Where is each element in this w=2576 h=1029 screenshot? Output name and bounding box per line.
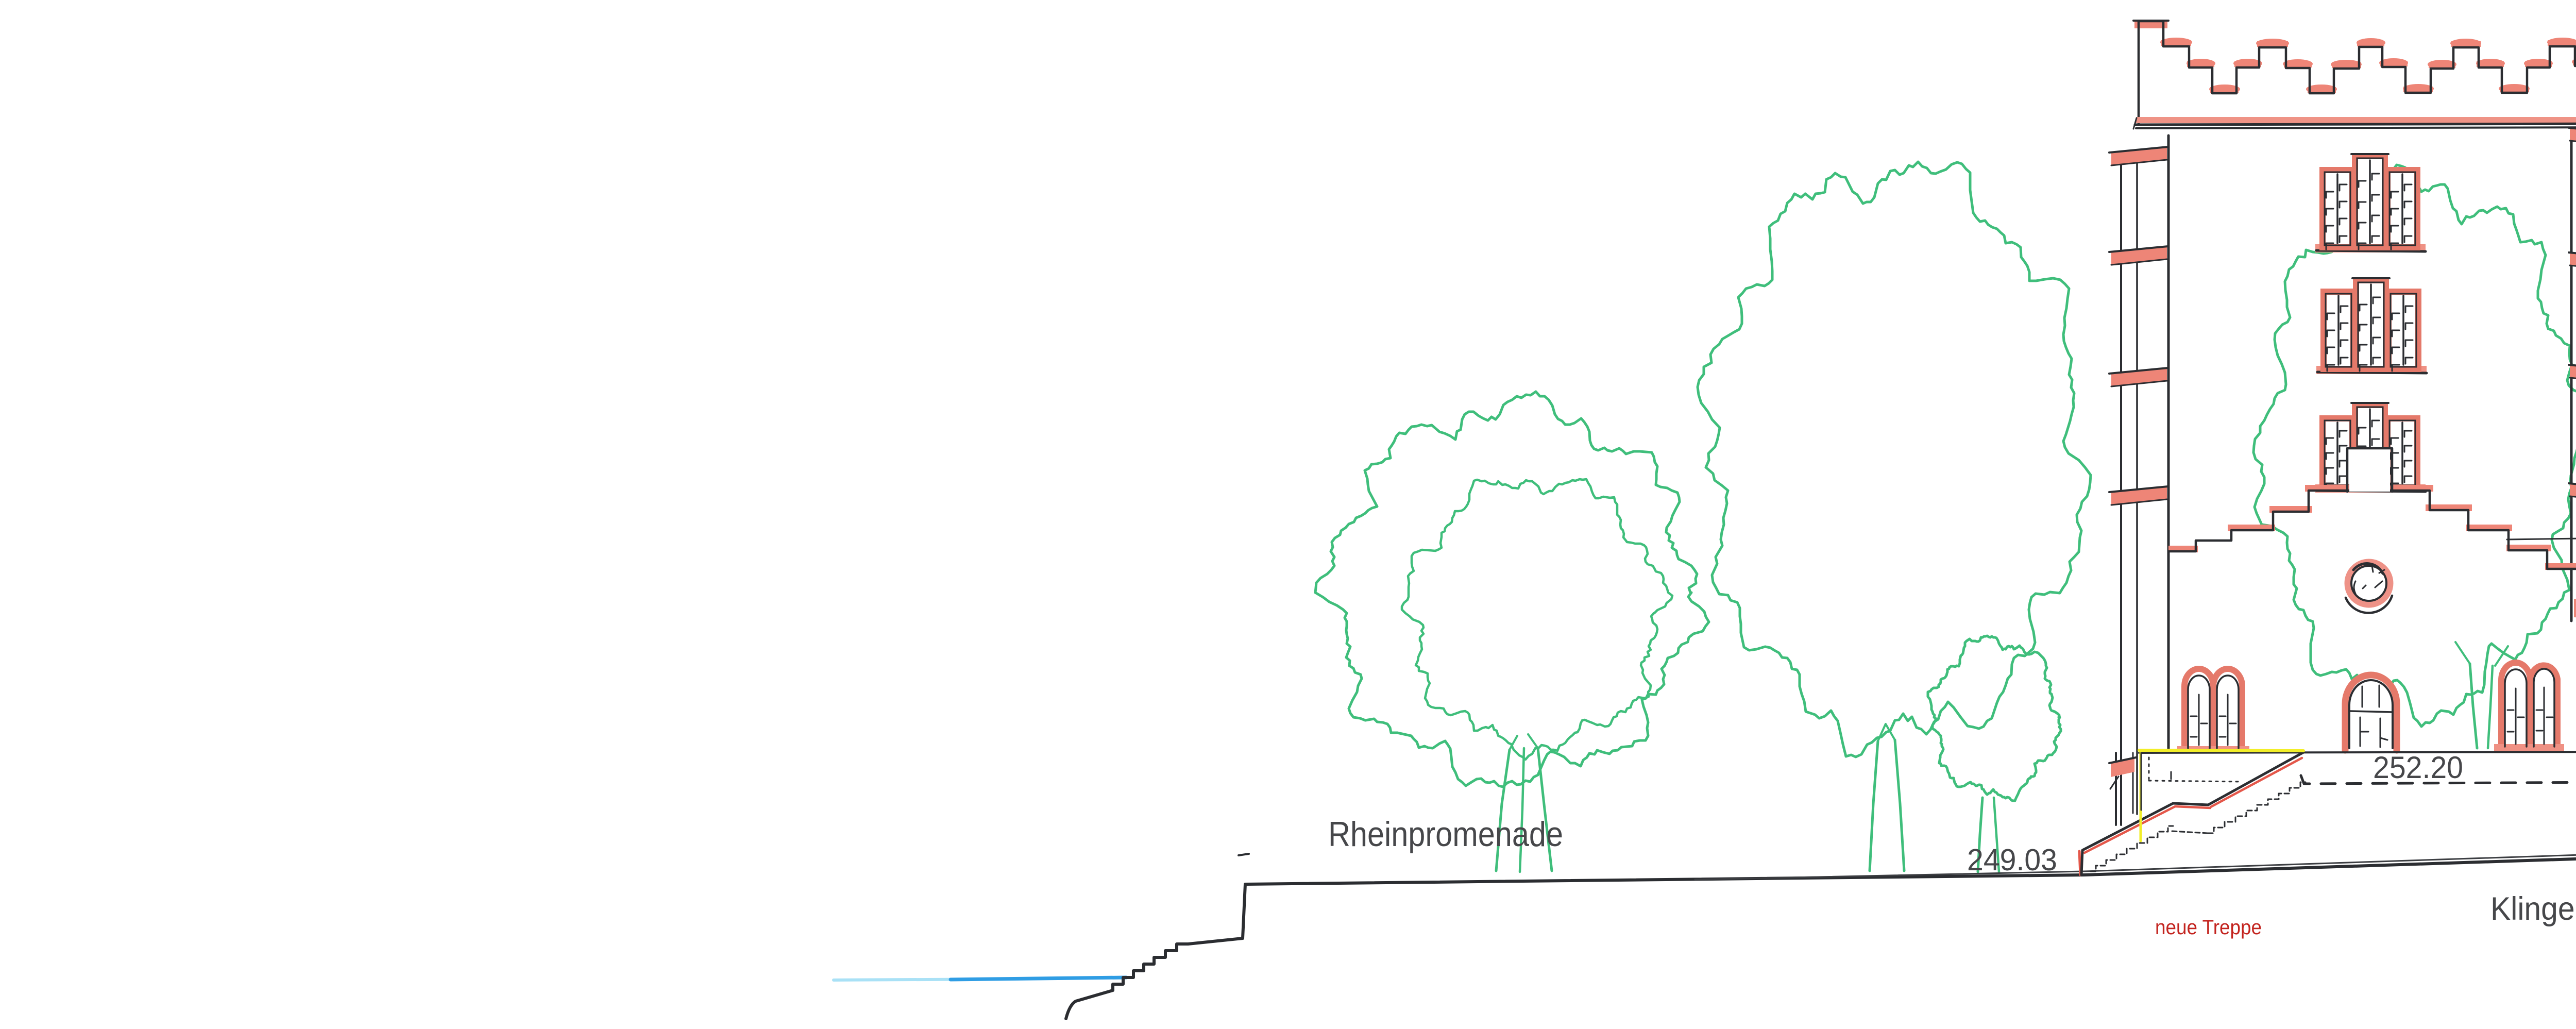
svg-text:Klingentalweglein: Klingentalweglein <box>2490 891 2576 927</box>
svg-text:252.20: 252.20 <box>2373 750 2463 785</box>
svg-text:249.03: 249.03 <box>1967 843 2057 877</box>
svg-text:Rheinpromenade: Rheinpromenade <box>1328 815 1563 854</box>
svg-text:neue Treppe: neue Treppe <box>2155 916 2262 939</box>
